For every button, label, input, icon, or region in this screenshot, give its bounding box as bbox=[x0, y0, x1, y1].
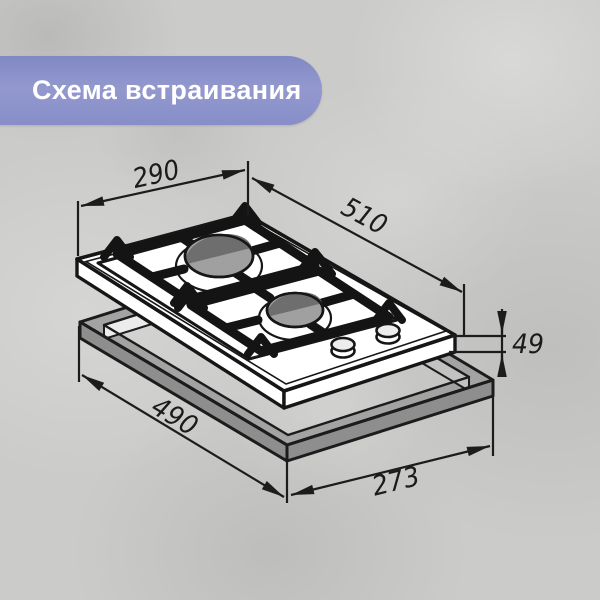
page-background: 290 510 49 490 273 Схема встраивания bbox=[0, 0, 600, 600]
section-banner: Схема встраивания bbox=[0, 56, 322, 125]
dim-label-49: 49 bbox=[512, 329, 544, 360]
dim-label-290: 290 bbox=[130, 154, 183, 194]
control-knob-2 bbox=[377, 324, 400, 344]
hob-drawing bbox=[77, 206, 455, 408]
dim-label-273: 273 bbox=[369, 461, 423, 503]
dim-label-510: 510 bbox=[336, 192, 392, 242]
banner-title: Схема встраивания bbox=[0, 75, 302, 106]
control-knob-1 bbox=[332, 338, 355, 358]
